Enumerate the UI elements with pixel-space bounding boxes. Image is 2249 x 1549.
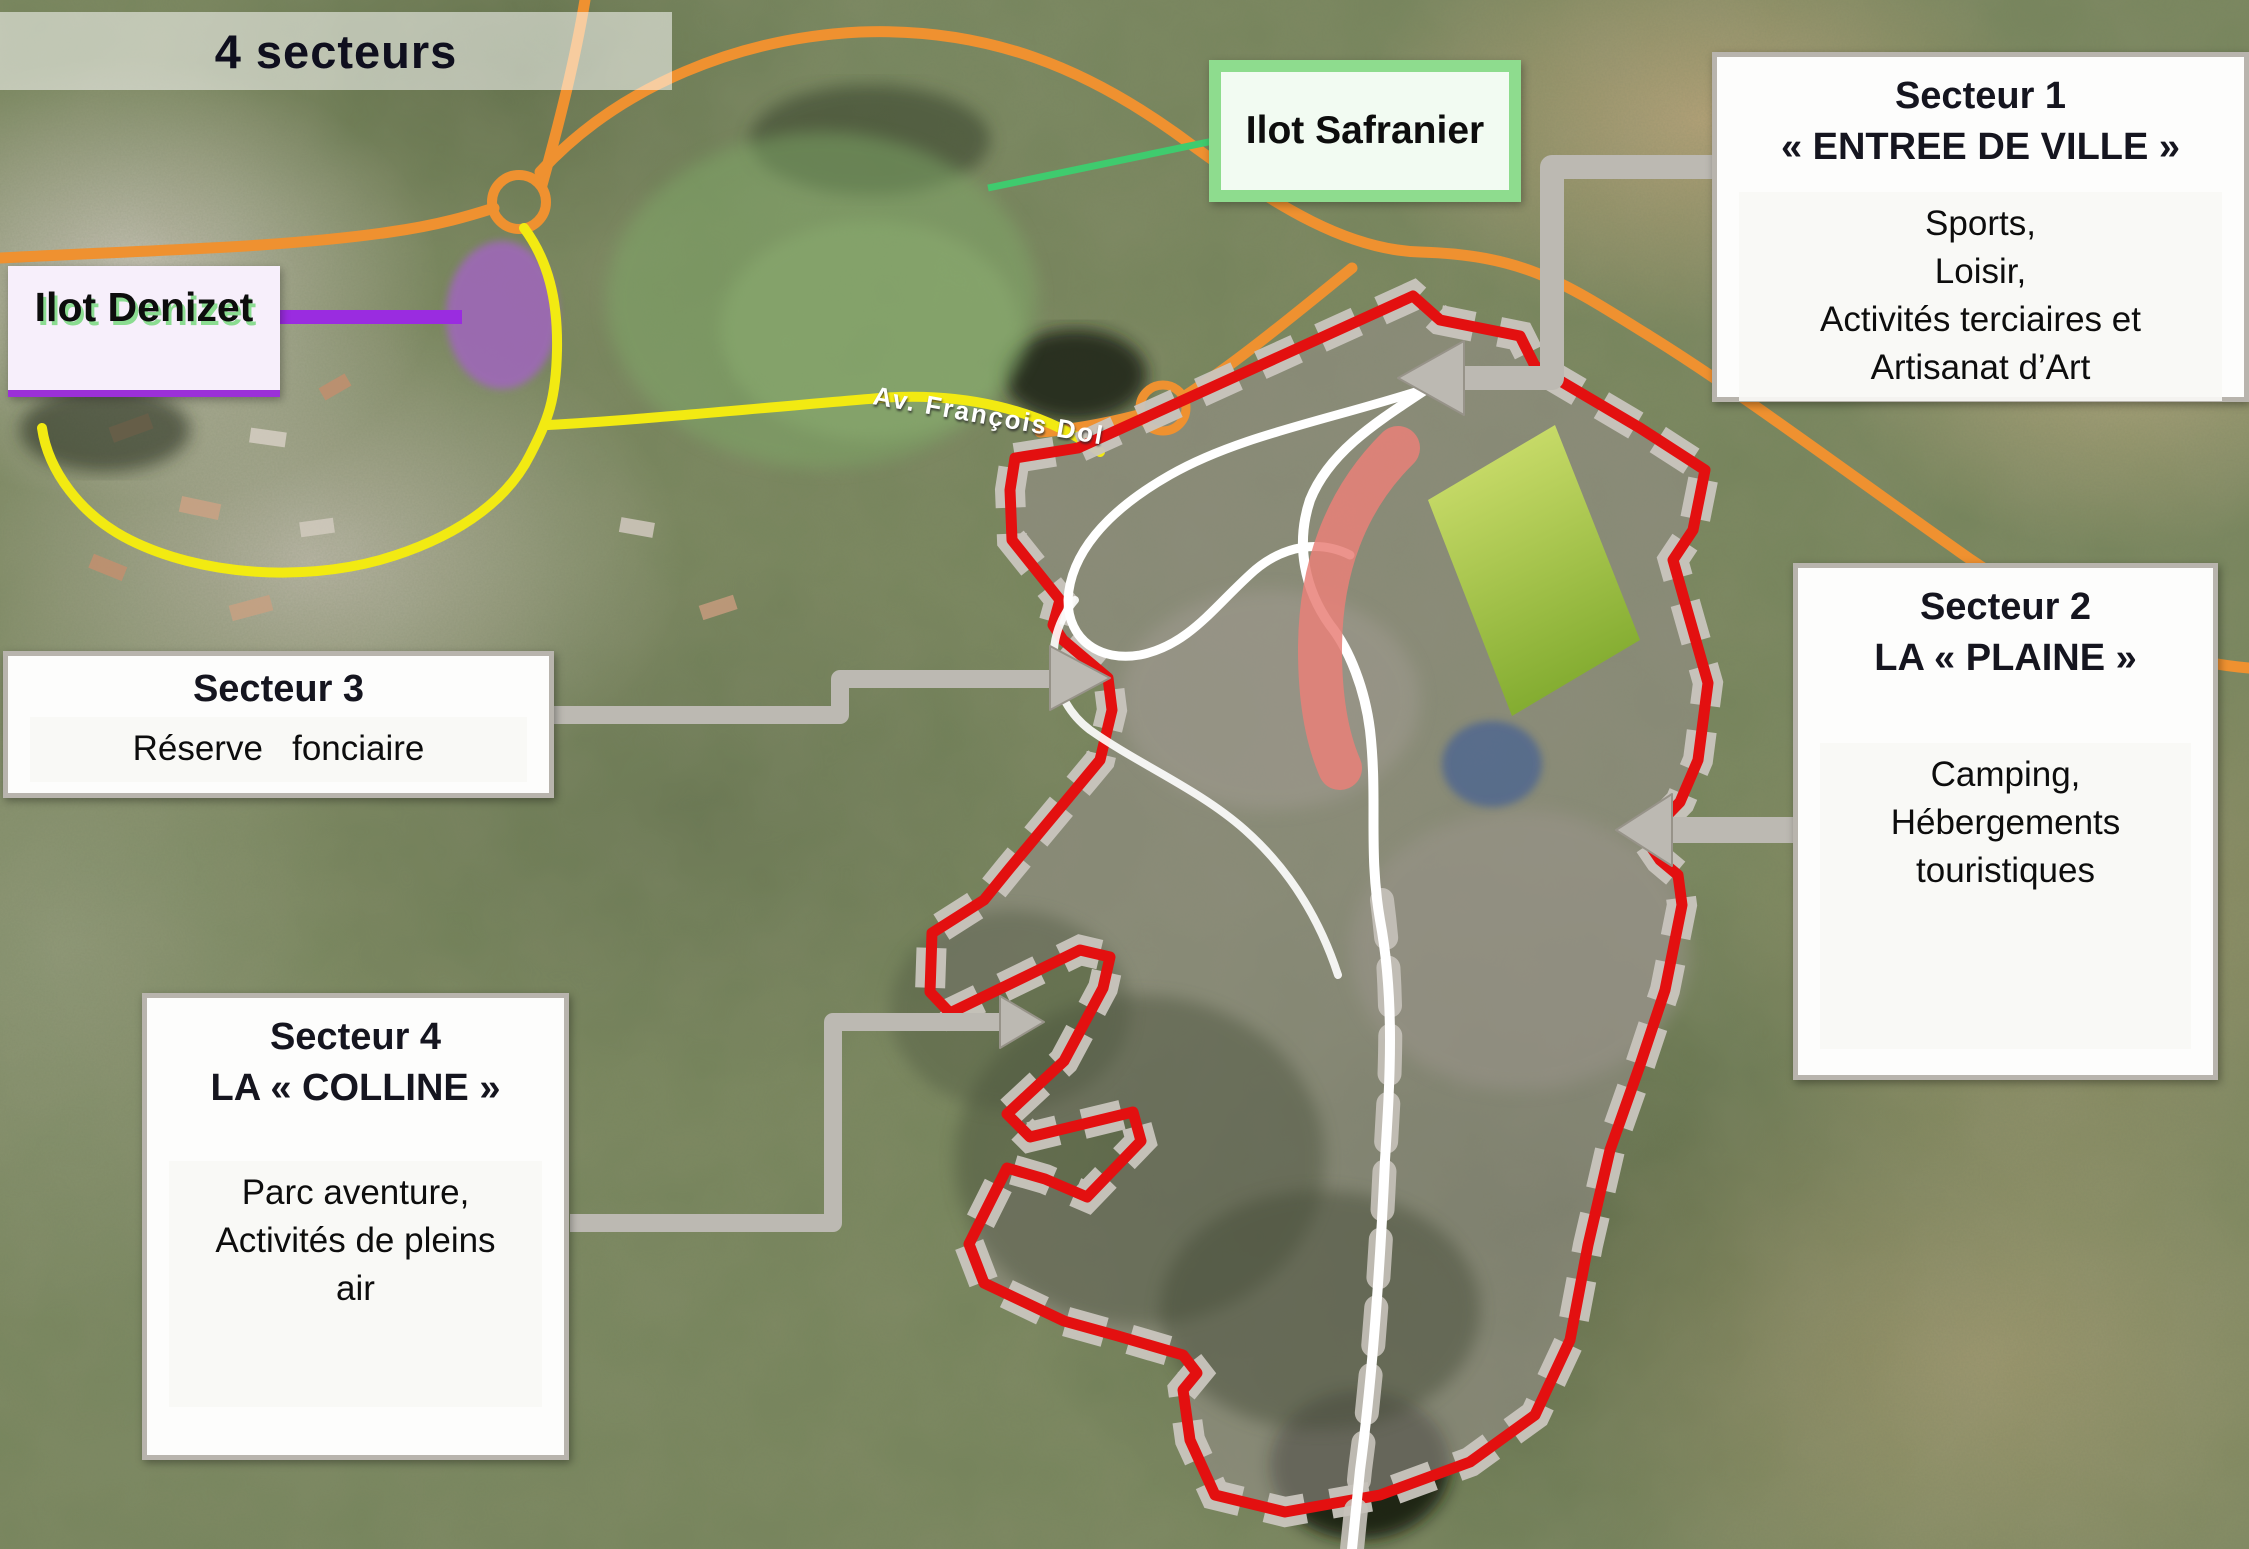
callout-ilot-denizet: Ilot Denizet [8,266,280,397]
callout-secteur-3: Secteur 3 Réserve fonciaire [3,651,554,798]
map-title-strip: 4 secteurs [0,12,672,90]
secteur-3-activities: Réserve fonciaire [30,717,527,781]
callout-secteur-2: Secteur 2 LA « PLAINE » Camping, Héberge… [1793,563,2218,1080]
ilot-denizet-label: Ilot Denizet [35,284,254,331]
ilot-safranier-label: Ilot Safranier [1246,109,1484,153]
secteur-1-activities: Sports, Loisir, Activités terciaires et … [1739,192,2222,401]
secteur-2-activities: Camping, Hébergements touristiques [1820,743,2191,1049]
pond [1442,721,1542,807]
activity-line: Activités terciaires et [1743,296,2218,344]
callout-secteur-1: Secteur 1 « ENTREE DE VILLE » Sports, Lo… [1712,52,2249,402]
activity-line: Réserve fonciaire [34,725,523,773]
secteur-4-subtitle: LA « COLLINE » [147,1063,564,1114]
activity-line: Parc aventure, [173,1169,538,1217]
secteur-1-title: Secteur 1 [1717,57,2244,122]
activity-line: Artisanat d’Art [1743,344,2218,392]
map-title: 4 secteurs [215,24,458,79]
activity-line: Loisir, [1743,248,2218,296]
aerial-plan-map: Av. François Dol 4 secteurs Ilot Safrani… [0,0,2249,1549]
activity-line: air [173,1265,538,1313]
secteur-1-subtitle: « ENTREE DE VILLE » [1717,122,2244,173]
secteur-2-subtitle: LA « PLAINE » [1798,633,2213,684]
secteur-4-title: Secteur 4 [147,998,564,1063]
secteur-2-title: Secteur 2 [1798,568,2213,633]
activity-line: Activités de pleins [173,1217,538,1265]
activity-line: Hébergements [1824,799,2187,847]
activity-line: touristiques [1824,847,2187,895]
secteur-4-activities: Parc aventure, Activités de pleins air [169,1161,542,1407]
secteur-3-title: Secteur 3 [8,658,549,715]
activity-line: Sports, [1743,200,2218,248]
callout-secteur-4: Secteur 4 LA « COLLINE » Parc aventure, … [142,993,569,1460]
callout-ilot-safranier: Ilot Safranier [1209,60,1521,202]
activity-line: Camping, [1824,751,2187,799]
